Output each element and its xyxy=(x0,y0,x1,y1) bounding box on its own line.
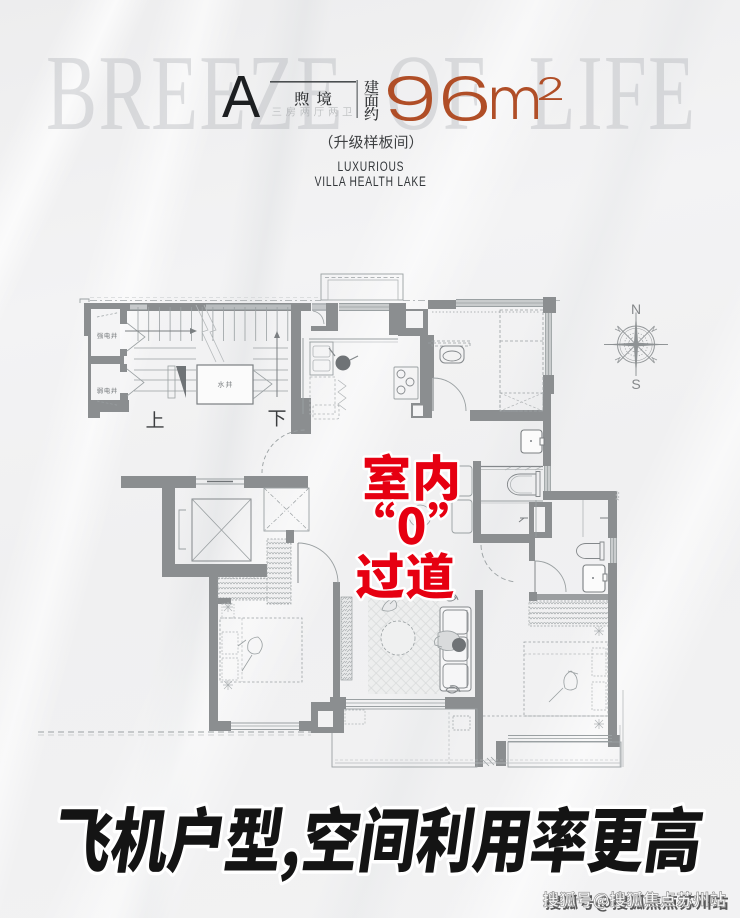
svg-text:S: S xyxy=(631,376,640,392)
svg-text:N: N xyxy=(631,301,641,317)
